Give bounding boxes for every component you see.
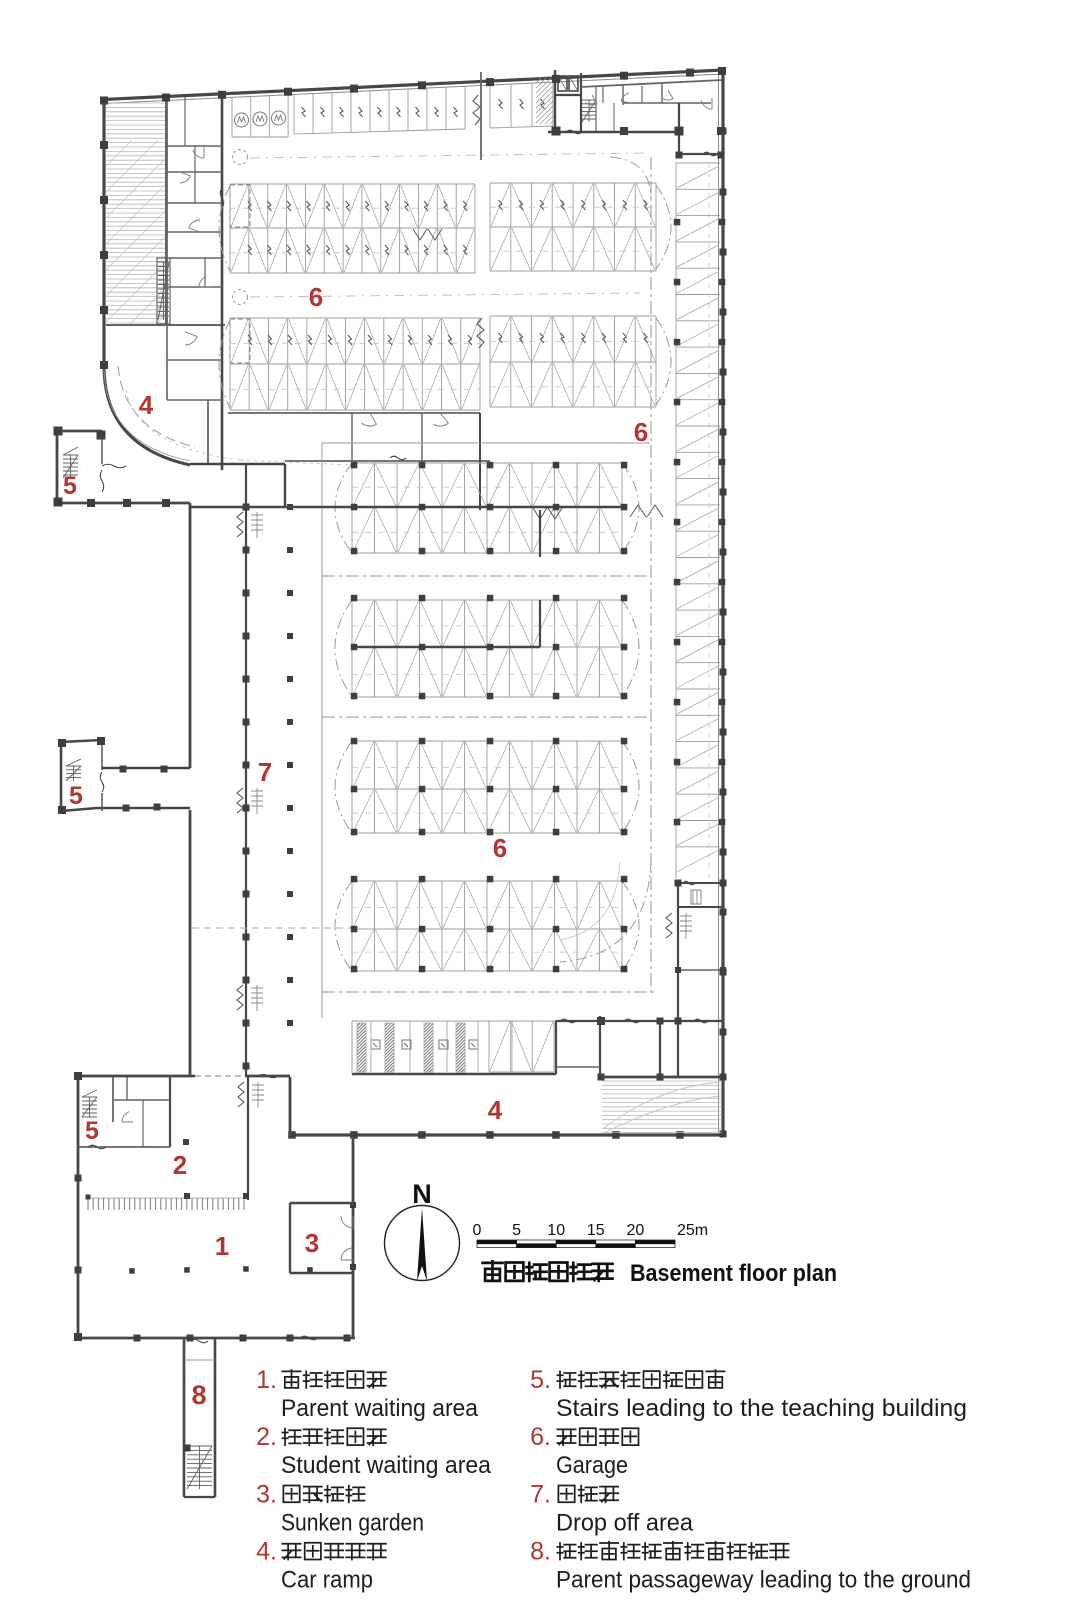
svg-text:5: 5	[69, 782, 83, 810]
svg-text:Car ramp: Car ramp	[281, 1567, 373, 1594]
svg-text:1: 1	[215, 1231, 229, 1261]
svg-text:25m: 25m	[677, 1222, 708, 1239]
svg-text:Stairs leading to the teaching: Stairs leading to the teaching building	[556, 1395, 967, 1422]
svg-text:4: 4	[488, 1095, 503, 1125]
svg-text:Parent waiting area: Parent waiting area	[281, 1395, 478, 1422]
svg-text:5: 5	[85, 1117, 99, 1145]
svg-text:Parent passageway leading to: Parent passageway leading to the ground	[556, 1567, 971, 1594]
svg-text:3: 3	[305, 1228, 319, 1258]
svg-text:6.: 6.	[530, 1423, 551, 1451]
svg-text:Sunken garden: Sunken garden	[281, 1509, 424, 1536]
svg-text:5.: 5.	[530, 1366, 551, 1394]
svg-text:3.: 3.	[256, 1480, 277, 1508]
svg-text:5: 5	[512, 1222, 521, 1239]
svg-text:N: N	[412, 1179, 432, 1209]
svg-text:4.: 4.	[256, 1538, 277, 1566]
svg-text:Garage: Garage	[556, 1452, 628, 1479]
svg-text:7.: 7.	[530, 1480, 551, 1508]
svg-text:7: 7	[258, 757, 272, 787]
svg-text:6: 6	[493, 833, 507, 863]
svg-text:2.: 2.	[256, 1423, 277, 1451]
svg-text:Student waiting area: Student waiting area	[281, 1452, 491, 1479]
svg-text:Basement floor plan: Basement floor plan	[630, 1260, 837, 1287]
svg-text:0: 0	[473, 1222, 482, 1239]
svg-text:8.: 8.	[530, 1538, 551, 1566]
svg-text:Drop off area: Drop off area	[556, 1509, 693, 1536]
svg-text:6: 6	[309, 282, 323, 312]
svg-text:4: 4	[139, 390, 154, 420]
svg-text:6: 6	[634, 417, 648, 447]
svg-text:15: 15	[587, 1222, 605, 1239]
svg-text:20: 20	[627, 1222, 645, 1239]
svg-text:1.: 1.	[256, 1366, 277, 1394]
svg-text:10: 10	[547, 1222, 565, 1239]
svg-text:2: 2	[173, 1150, 187, 1180]
svg-text:8: 8	[191, 1380, 206, 1410]
svg-text:5: 5	[63, 472, 77, 500]
